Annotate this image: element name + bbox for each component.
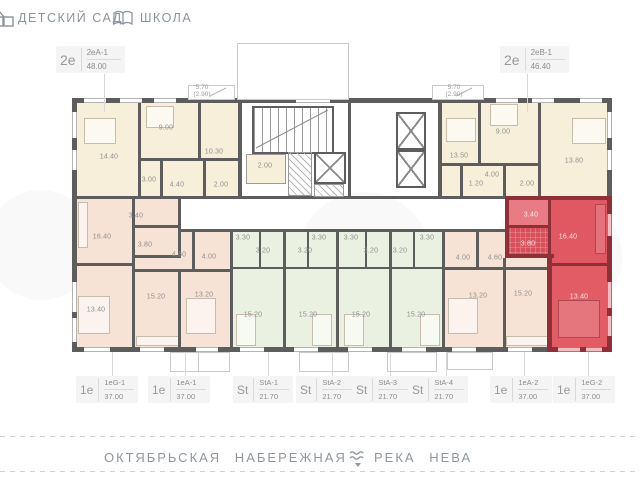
room-area-label: 13.20 [469, 293, 488, 300]
kindergarten-icon [0, 8, 17, 30]
unit-code: 2еВ-1 [531, 48, 565, 60]
balcony-area-label: 5.70 (2.90) [440, 84, 468, 98]
unit-area: 21.70 [322, 390, 352, 401]
unit-area: 21.70 [434, 390, 464, 401]
street-name-label: ОКТЯБРЬСКАЯ НАБЕРЕЖНАЯ [104, 450, 347, 465]
room-area-label: 3.20 [393, 248, 407, 255]
unit-type-label: St [300, 383, 311, 397]
unit-code: StА-1 [259, 378, 289, 390]
room-area-label: 15.20 [299, 312, 318, 319]
room-area-label: 3.20 [364, 248, 378, 255]
room-area-label: 4.00 [485, 172, 499, 179]
unit-code: 1еА-2 [518, 378, 548, 390]
balcony-area-label: 5.70 (2.90) [188, 84, 216, 98]
unit-area: 37.00 [104, 390, 134, 401]
unit-code: StА-2 [322, 378, 352, 390]
unit-type-label: St [412, 383, 423, 397]
room-area-label: 4.00 [202, 254, 216, 261]
room-area-label: 3.00 [142, 177, 156, 184]
unit-badge-1eg1[interactable]: 1е 1еG-137.00 [76, 376, 138, 403]
unit-area: 37.00 [176, 390, 206, 401]
room-area-label: 16.40 [559, 234, 578, 241]
unit-type-label: St [356, 383, 367, 397]
unit-badge-1ea2[interactable]: 1е 1еА-237.00 [490, 376, 552, 403]
school-label[interactable]: ШКОЛА [140, 11, 192, 25]
room-area-label: 15.20 [407, 312, 426, 319]
room-area-label: 13.40 [87, 307, 106, 314]
kindergarten-label[interactable]: ДЕТСКИЙ САД [18, 11, 123, 25]
river-dashed-line [0, 471, 640, 472]
unit-area: 37.00 [518, 390, 548, 401]
unit-badge-sta4[interactable]: St StА-421.70 [408, 376, 468, 403]
unit-code: 2еА-1 [87, 48, 121, 60]
unit-code: StА-4 [434, 378, 464, 390]
room-area-label: 16.40 [93, 234, 112, 241]
unit-badge-sta3[interactable]: St StА-321.70 [352, 376, 412, 403]
room-area-label: 15.20 [244, 312, 263, 319]
room-area-label: 14.40 [100, 154, 119, 161]
room-area-label: 1.20 [469, 181, 483, 188]
room-area-label: 3.80 [138, 242, 152, 249]
unit-type-label: St [237, 383, 248, 397]
room-area-label: 3.80 [521, 241, 535, 248]
unit-type-label: 1е [557, 383, 570, 397]
unit-area: 37.00 [581, 390, 611, 401]
room-area-label: 13.50 [450, 153, 469, 160]
river-icon [349, 449, 367, 469]
room-area-label: 3.30 [420, 235, 434, 242]
amenities-bar: ДЕТСКИЙ САД ШКОЛА [0, 0, 640, 34]
unit-area: 21.70 [378, 390, 408, 401]
unit-badge-1ea1[interactable]: 1е 1еА-137.00 [148, 376, 210, 403]
room-area-label: 13.40 [570, 294, 589, 301]
room-area-label: 2.00 [520, 181, 534, 188]
unit-type-label: 2е [504, 52, 520, 68]
room-area-label: 13.20 [195, 292, 214, 299]
street-dashed-line [0, 436, 640, 437]
unit-code: StА-3 [378, 378, 408, 390]
unit-area: 21.70 [259, 390, 289, 401]
school-icon [112, 10, 134, 27]
unit-code: 1еG-1 [104, 378, 134, 390]
room-area-label: 2.00 [258, 163, 272, 170]
room-area-label: 3.40 [524, 212, 538, 219]
room-area-label: 9.00 [496, 129, 510, 136]
unit-type-label: 1е [494, 383, 507, 397]
unit-badge-2ev1[interactable]: 2е 2еВ-1 46.40 [500, 46, 569, 73]
room-area-label: 4.60 [172, 252, 186, 259]
room-area-label: 3.30 [312, 235, 326, 242]
room-area-label: 13.80 [565, 158, 584, 165]
unit-badge-1eg2[interactable]: 1е 1еG-237.00 [553, 376, 615, 403]
unit-type-label: 2е [60, 52, 76, 68]
room-area-label: 9.00 [159, 125, 173, 132]
unit-badge-sta1[interactable]: St StА-121.70 [233, 376, 293, 403]
room-area-label: 2.00 [214, 182, 228, 189]
room-area-label: 10.30 [205, 149, 224, 156]
unit-badge-sta2[interactable]: St StА-221.70 [296, 376, 356, 403]
unit-area: 48.00 [87, 60, 121, 71]
room-area-label: 15.20 [147, 294, 166, 301]
room-area-label: 3.30 [236, 235, 250, 242]
room-area-label: 15.20 [352, 312, 371, 319]
room-area-label: 3.20 [256, 248, 270, 255]
unit-badge-2ea1[interactable]: 2е 2еА-1 48.00 [56, 46, 125, 73]
floorplan-screen: 14.409.0010.303.004.402.002.0013.509.001… [0, 0, 640, 480]
room-area-label: 3.30 [344, 235, 358, 242]
room-area-label: 3.40 [129, 213, 143, 220]
room-area-label: 4.00 [456, 255, 470, 262]
unit-type-label: 1е [80, 383, 93, 397]
unit-code: 1еА-1 [176, 378, 206, 390]
river-name-label: РЕКА НЕВА [374, 450, 472, 465]
room-area-label: 15.20 [514, 291, 533, 298]
unit-area: 46.40 [531, 60, 565, 71]
unit-code: 1еG-2 [581, 378, 611, 390]
unit-type-label: 1е [152, 383, 165, 397]
room-area-label: 4.60 [488, 255, 502, 262]
room-area-label: 4.40 [170, 182, 184, 189]
room-area-label: 3.20 [298, 248, 312, 255]
